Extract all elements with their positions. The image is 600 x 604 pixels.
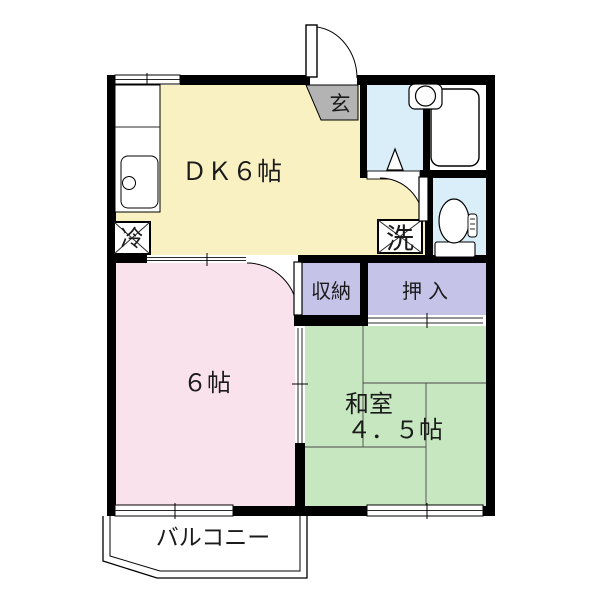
oshiire-fusuma: [368, 313, 483, 328]
label-shunou: 収納: [311, 279, 351, 303]
kitchen-window: [115, 73, 180, 86]
label-dk: ＤＫ６帖: [182, 157, 282, 186]
washroom-threshold: [367, 171, 420, 179]
label-japanese-room-2: ４．５帖: [347, 416, 443, 444]
balcony-window-east: [367, 503, 483, 519]
floor-plan: ＤＫ６帖 玄 冷 洗 収納 押入 ６帖 和室 ４．５帖 バルコニー: [0, 0, 600, 600]
balcony-window-west: [115, 503, 233, 519]
label-balcony: バルコニー: [156, 525, 271, 551]
label-japanese-room-1: 和室: [345, 390, 393, 418]
label-genkan: 玄: [330, 92, 351, 116]
entrance-door: [306, 25, 357, 78]
label-refrigerator: 冷: [121, 226, 144, 252]
wash-basin: [409, 84, 442, 109]
label-western-room: ６帖: [183, 369, 231, 397]
kitchen-counter: [115, 85, 160, 212]
label-laundry: 洗: [386, 222, 414, 255]
faucet-icon: [123, 177, 136, 190]
floor-plan-canvas: ＤＫ６帖 玄 冷 洗 収納 押入 ６帖 和室 ４．５帖 バルコニー: [0, 0, 600, 600]
label-oshiire: 押入: [402, 279, 454, 303]
